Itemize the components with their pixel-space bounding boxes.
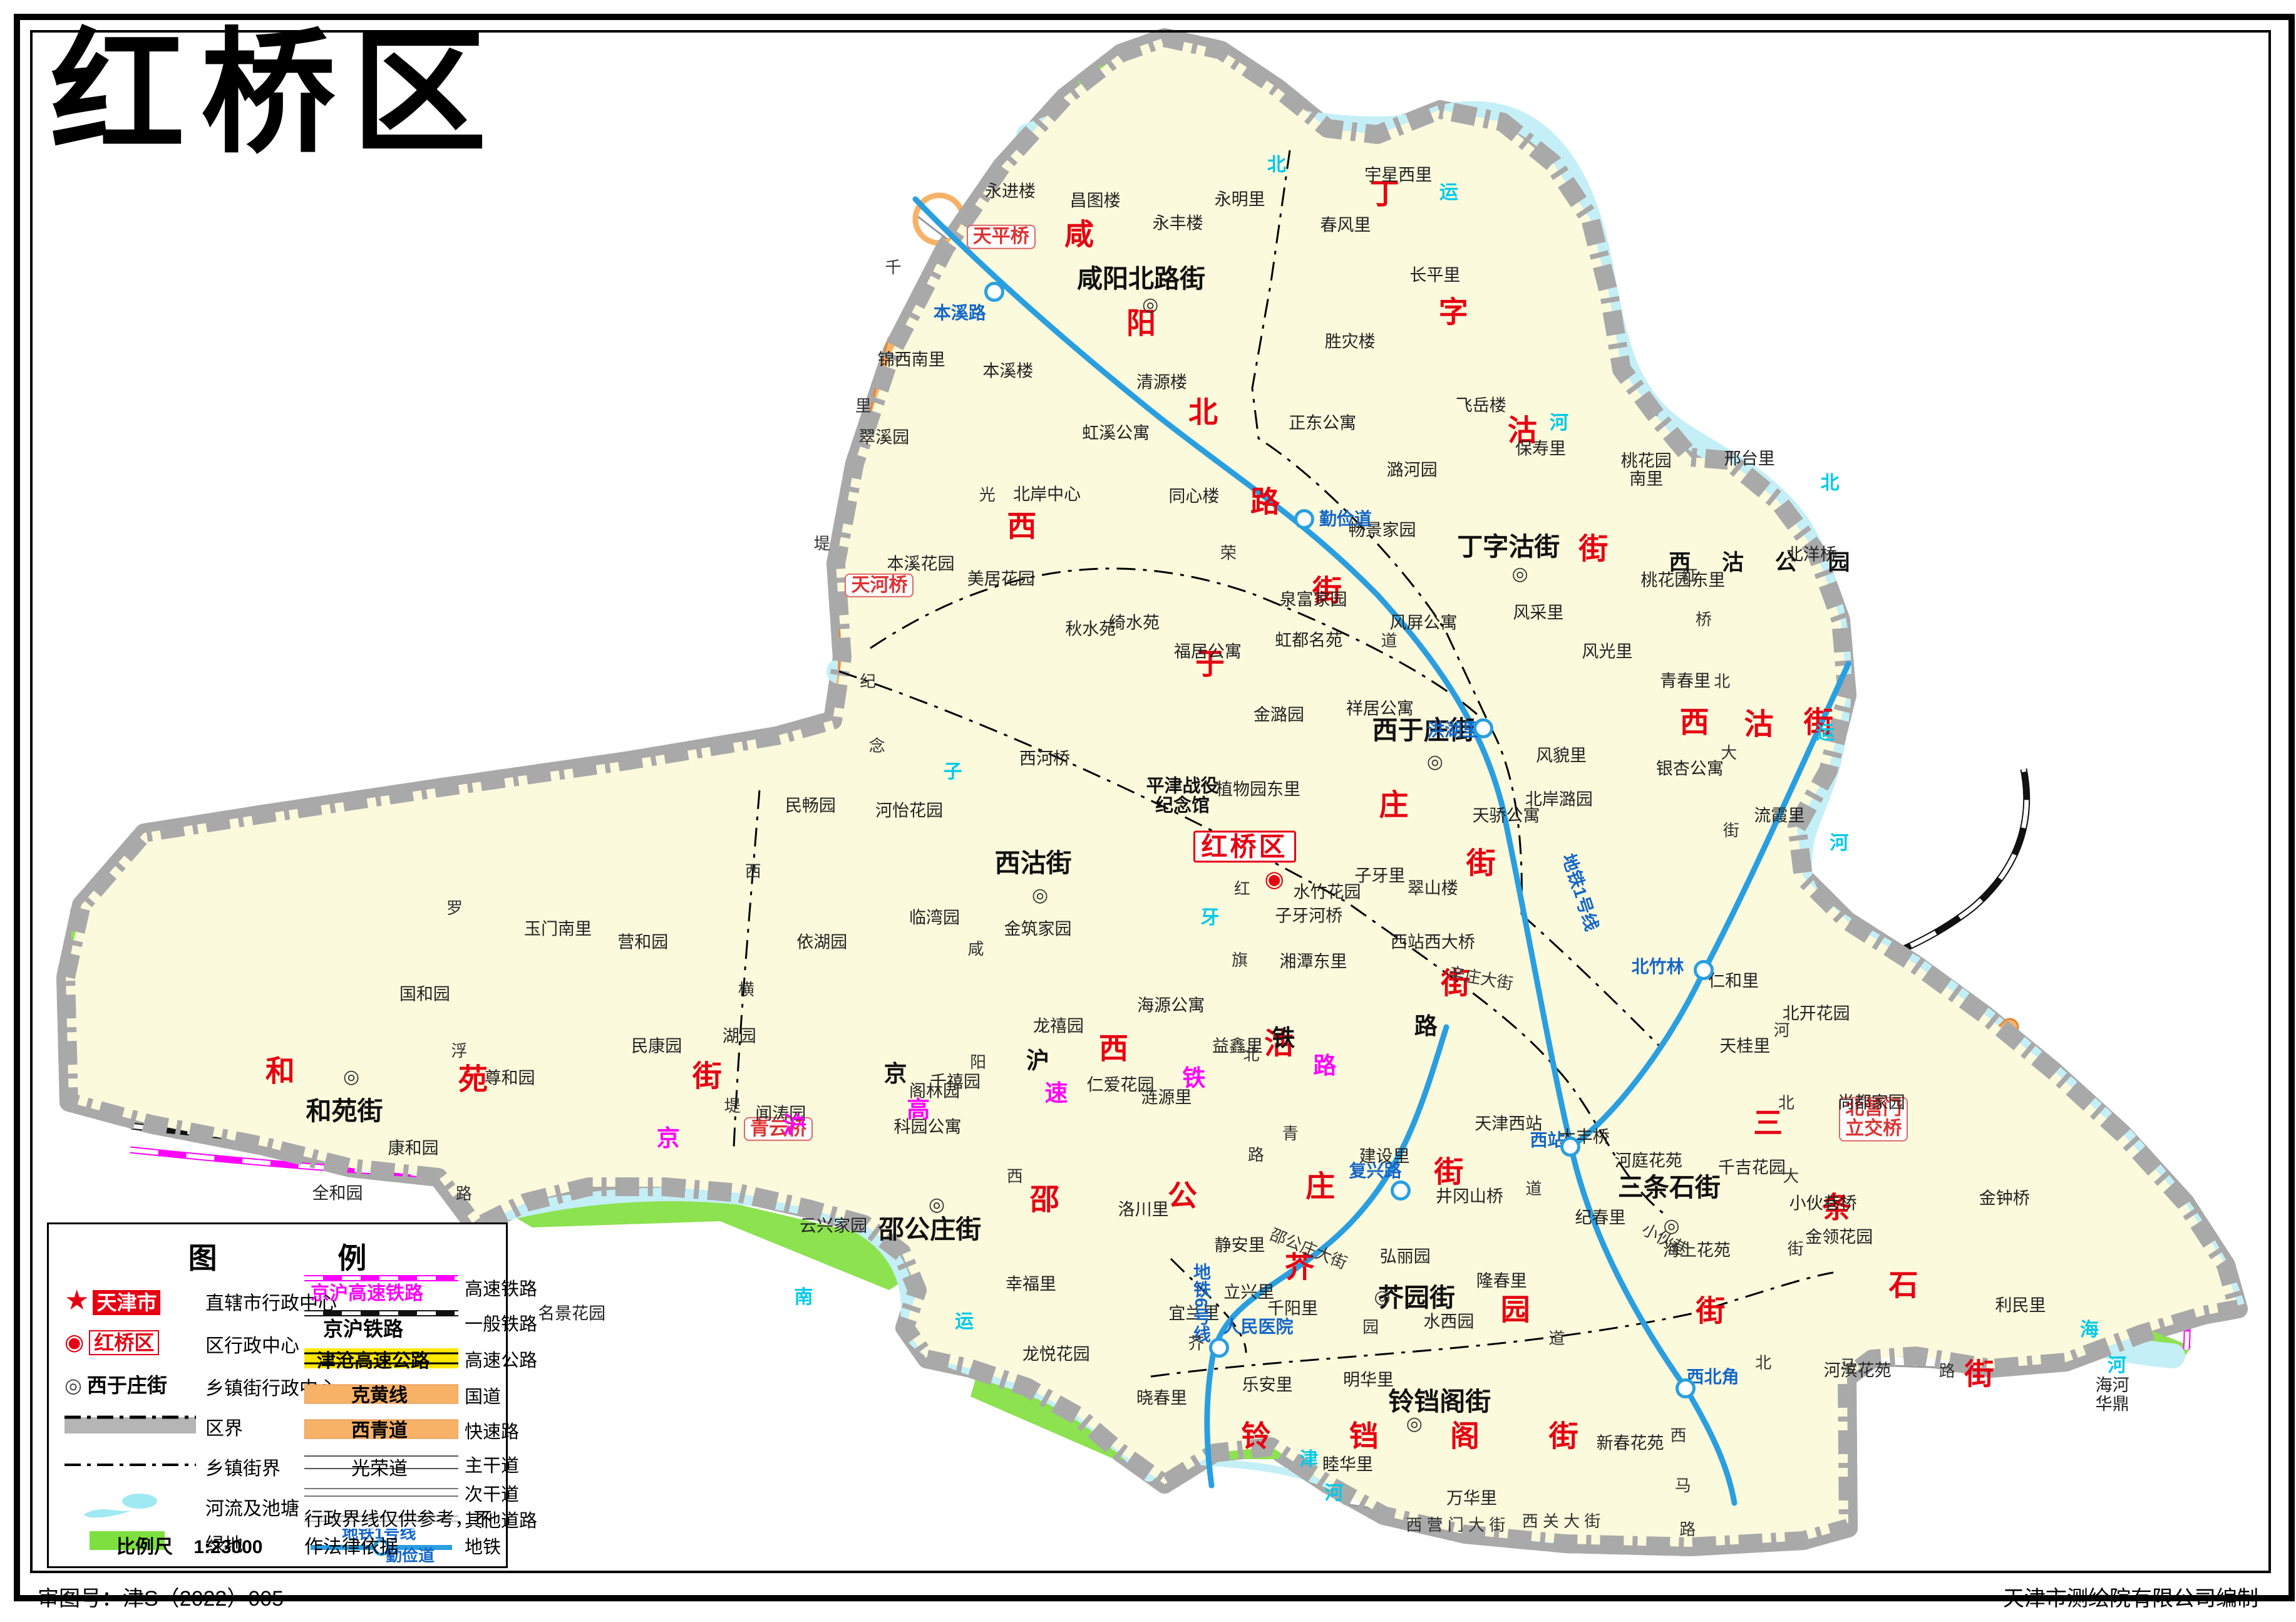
map-frame-outer [14,14,2295,1601]
map-page: 红桥区 咸阳北路街丁字沽街西于庄街西沽街西沽街和苑街邵公庄街芥园街铃铛阁街三条石… [0,0,2296,1622]
footer-approval-number: 审图号：津S（2022）005 [38,1581,284,1612]
footer-publisher: 天津市测绘院有限公司编制 [2003,1581,2258,1612]
